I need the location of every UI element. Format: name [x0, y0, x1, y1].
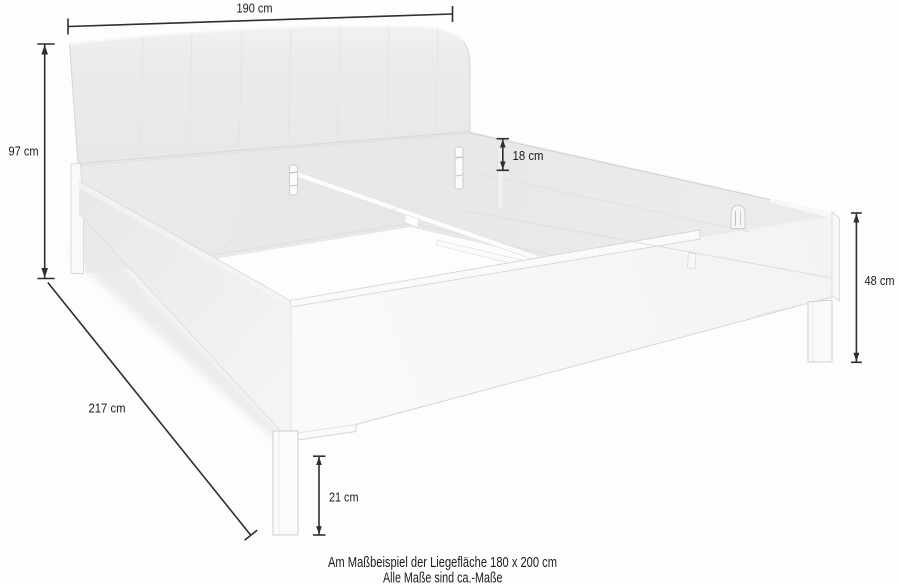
svg-text:217 cm: 217 cm	[89, 402, 126, 416]
svg-text:Am Maßbeispiel der Liegefläche: Am Maßbeispiel der Liegefläche 180 x 200…	[328, 555, 557, 571]
svg-text:18 cm: 18 cm	[513, 149, 544, 163]
svg-text:97 cm: 97 cm	[9, 145, 39, 159]
svg-text:Alle Maße sind ca.-Maße: Alle Maße sind ca.-Maße	[383, 571, 503, 585]
svg-text:48 cm: 48 cm	[865, 274, 895, 288]
svg-text:21 cm: 21 cm	[329, 491, 359, 505]
svg-text:190 cm: 190 cm	[237, 2, 273, 16]
